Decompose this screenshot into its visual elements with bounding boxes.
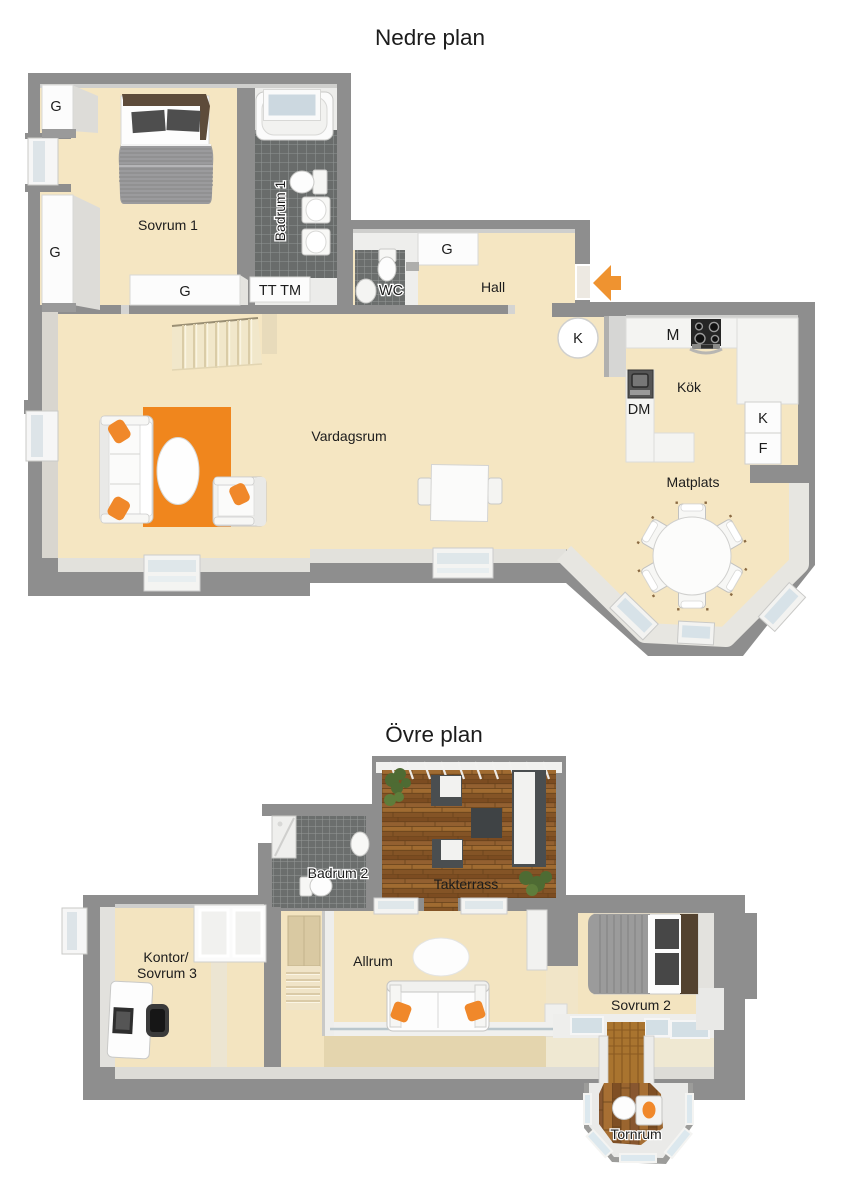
svg-text:Nedre plan: Nedre plan — [375, 25, 485, 50]
svg-text:Badrum 2: Badrum 2 — [308, 865, 369, 881]
svg-text:TT TM: TT TM — [259, 283, 301, 299]
svg-text:M: M — [667, 327, 680, 344]
svg-text:G: G — [441, 242, 452, 258]
svg-text:K: K — [758, 411, 768, 427]
svg-text:Kök: Kök — [677, 379, 702, 395]
svg-text:Matplats: Matplats — [667, 474, 720, 490]
svg-text:Badrum 1: Badrum 1 — [272, 180, 288, 241]
svg-text:Takterrass: Takterrass — [434, 876, 499, 892]
svg-text:WC: WC — [379, 283, 403, 299]
svg-text:Tornrum: Tornrum — [610, 1126, 661, 1142]
svg-text:G: G — [49, 245, 60, 261]
svg-text:DM: DM — [628, 402, 651, 418]
svg-text:Vardagsrum: Vardagsrum — [311, 428, 386, 444]
svg-text:Hall: Hall — [481, 279, 505, 295]
svg-text:F: F — [759, 441, 768, 457]
svg-text:Allrum: Allrum — [353, 953, 393, 969]
svg-text:Sovrum 1: Sovrum 1 — [138, 217, 198, 233]
svg-text:G: G — [50, 99, 61, 115]
svg-text:Kontor/: Kontor/ — [143, 949, 188, 965]
svg-text:K: K — [573, 331, 583, 347]
svg-text:Övre plan: Övre plan — [385, 722, 483, 747]
svg-text:G: G — [179, 284, 190, 300]
svg-text:Sovrum 3: Sovrum 3 — [137, 965, 197, 981]
svg-text:Sovrum 2: Sovrum 2 — [611, 997, 671, 1013]
